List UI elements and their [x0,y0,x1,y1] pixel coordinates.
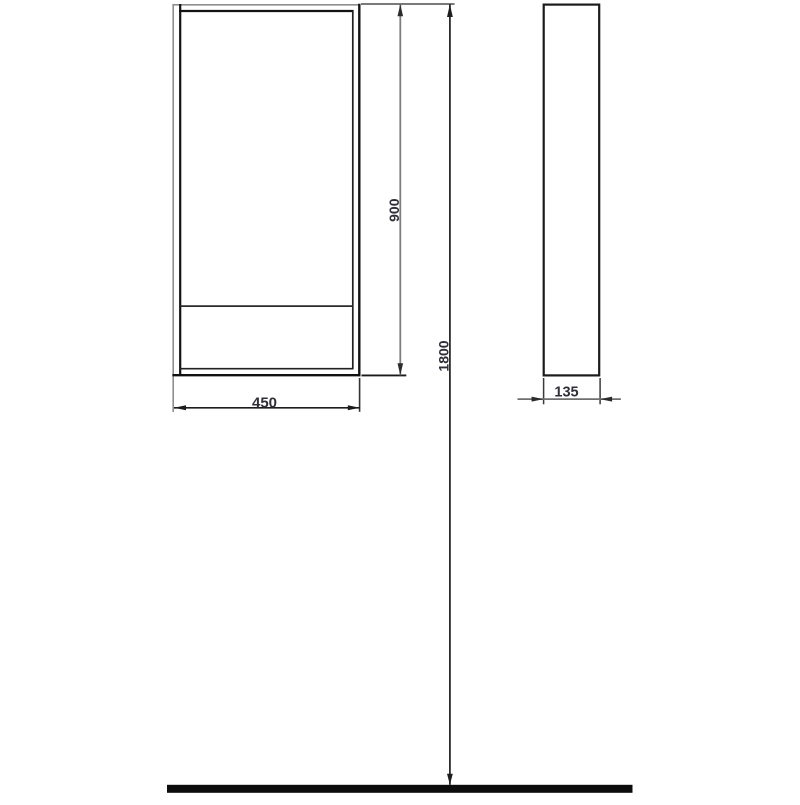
svg-text:900: 900 [386,198,402,222]
svg-text:450: 450 [252,395,277,412]
svg-text:1800: 1800 [436,340,452,371]
svg-text:135: 135 [554,384,578,400]
